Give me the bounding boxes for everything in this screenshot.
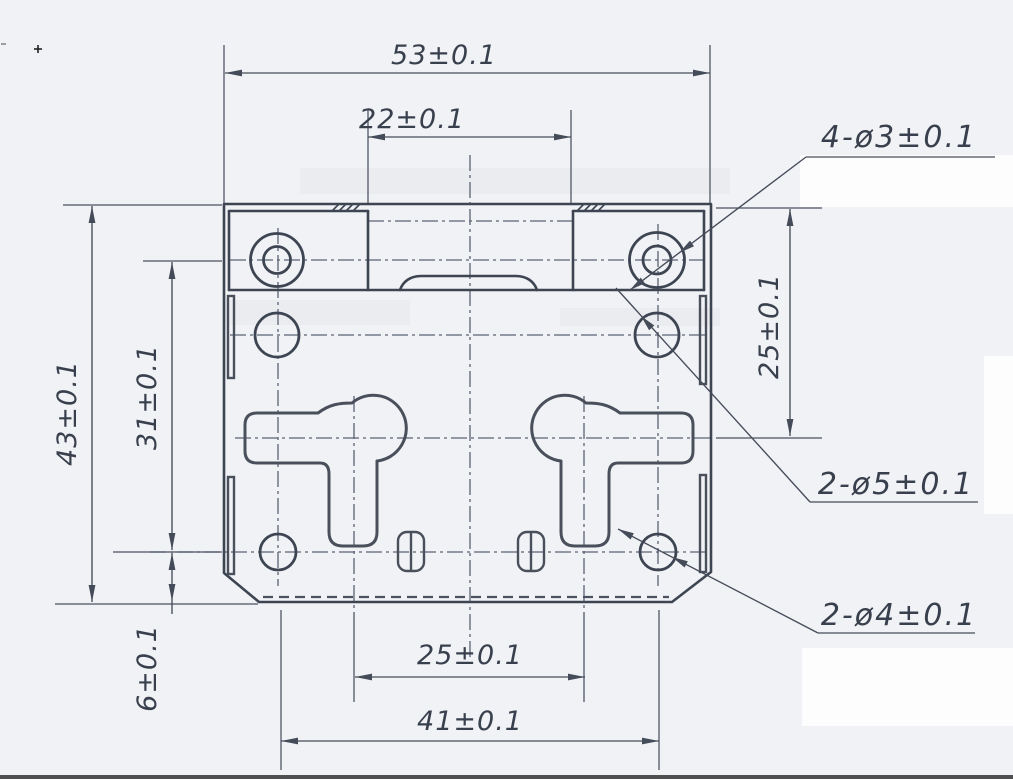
- part-view: [224, 204, 711, 602]
- drawing-sheet: 53±0.1 22±0.1 25±0.1 43±0.1: [0, 0, 1013, 779]
- dim-label-total-width: 53±0.1: [391, 40, 497, 71]
- dim-label-right-offset: 25±0.1: [754, 273, 785, 379]
- whiteout-patch: [800, 155, 1013, 207]
- dim-label-lower-hole-spacing: 41±0.1: [417, 706, 523, 737]
- scan-smudge: [230, 300, 410, 325]
- scan-smudge: [300, 168, 730, 194]
- dim-right-offset: 25±0.1: [716, 208, 822, 438]
- part-outline: [224, 204, 711, 602]
- callout-label-corner-holes: 4-ø3±0.1: [821, 120, 977, 155]
- dimensions: 53±0.1 22±0.1 25±0.1 43±0.1: [52, 40, 822, 770]
- whiteout-patch: [802, 648, 1013, 726]
- scan-bottom-edge: [0, 775, 1013, 779]
- stamped-dimple: [400, 276, 537, 290]
- dim-label-total-height: 43±0.1: [52, 360, 83, 466]
- whiteout-patch: [984, 356, 1013, 514]
- dim-left-span: 31±0.1: [113, 261, 222, 552]
- dim-bottom-edge-offset: 6±0.1: [132, 553, 175, 712]
- dim-label-left-span: 31±0.1: [132, 344, 163, 450]
- dim-label-notch-width: 22±0.1: [359, 104, 465, 135]
- keyhole-slot-right: [532, 395, 693, 546]
- callout-label-mid-holes: 2-ø5±0.1: [818, 467, 974, 502]
- callout-label-lower-holes: 2-ø4±0.1: [821, 598, 977, 633]
- dim-label-slot-spacing: 25±0.1: [417, 640, 523, 671]
- dim-label-bottom-edge-offset: 6±0.1: [132, 624, 163, 712]
- callout-lower-holes: 2-ø4±0.1: [618, 529, 977, 633]
- keyhole-slot-left: [245, 395, 406, 546]
- technical-drawing: 53±0.1 22±0.1 25±0.1 43±0.1: [0, 0, 1013, 779]
